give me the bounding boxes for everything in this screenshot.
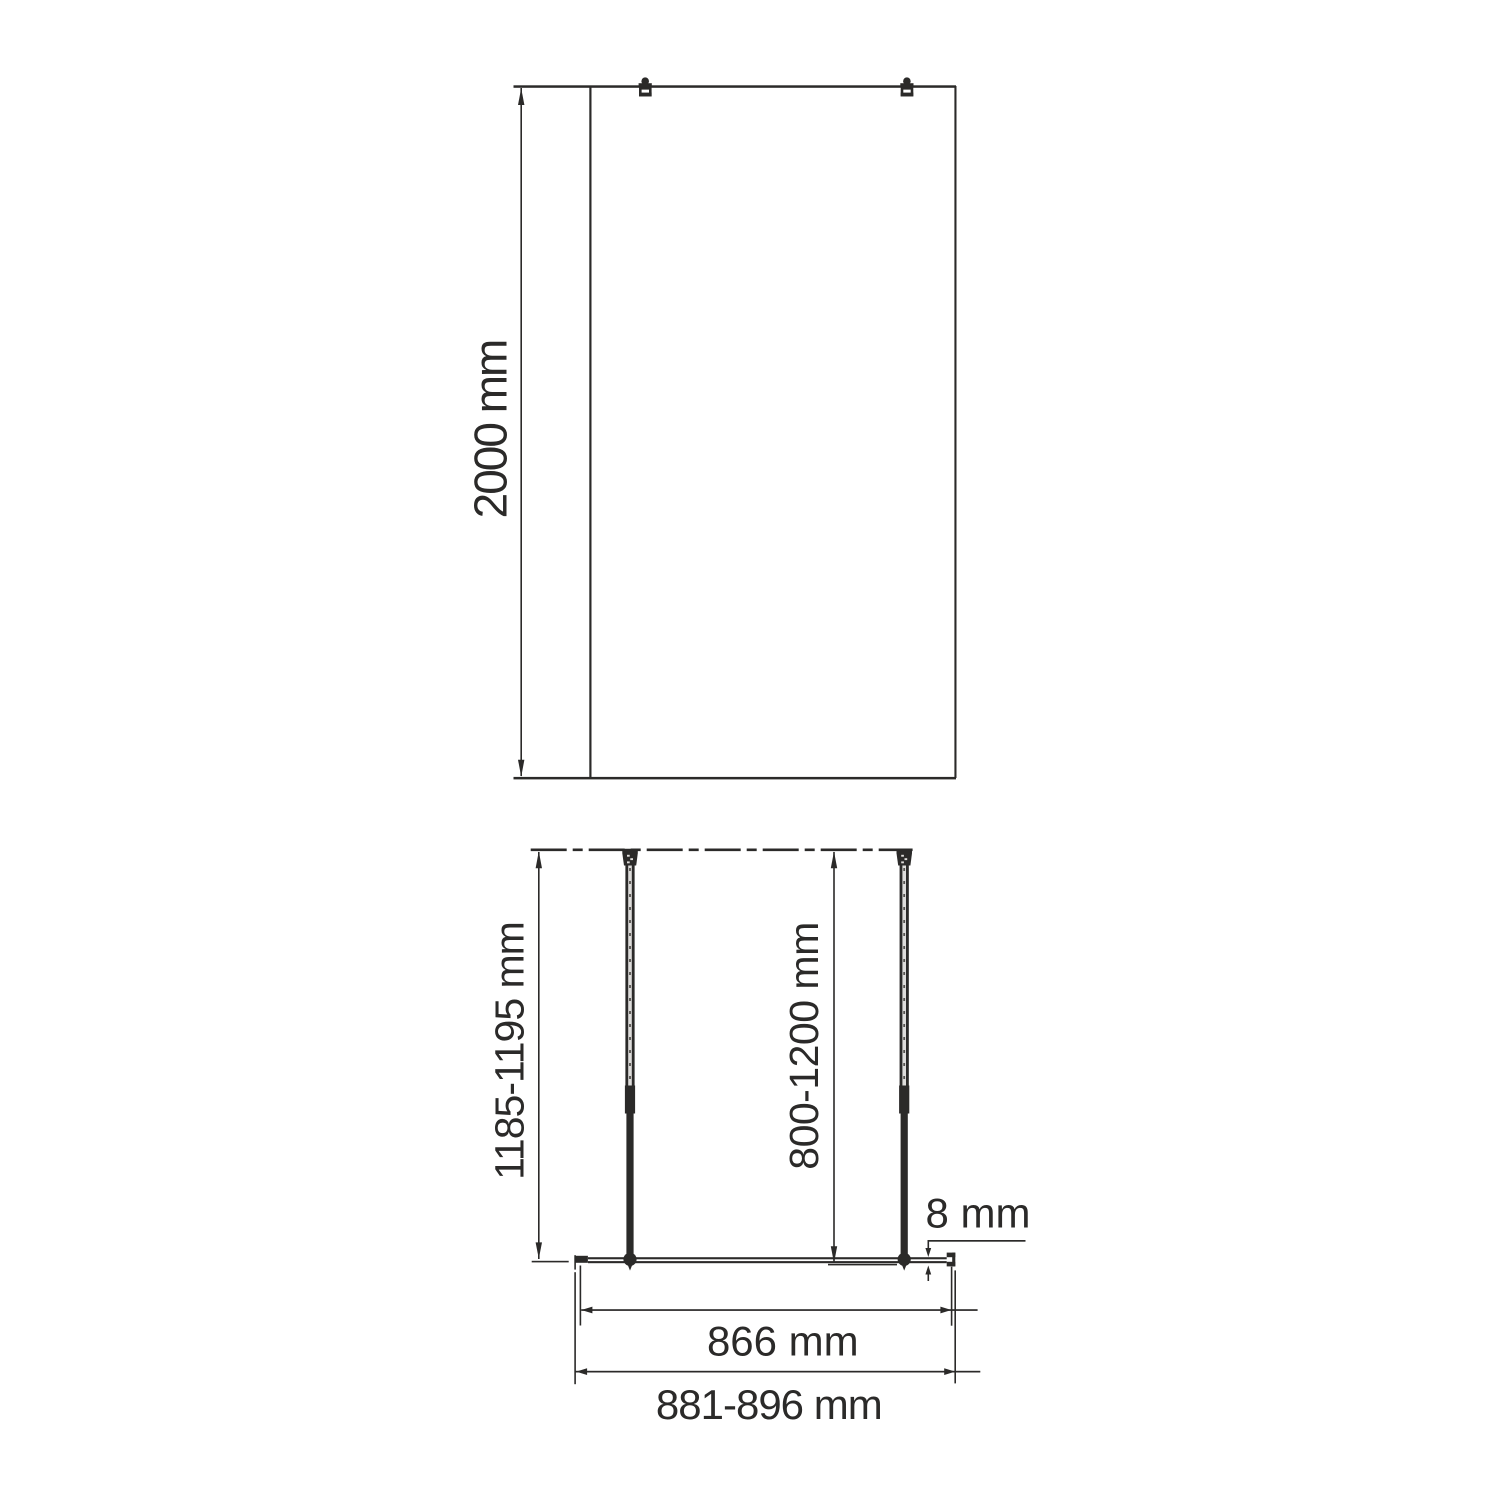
svg-text:800-1200 mm: 800-1200 mm	[781, 922, 827, 1169]
svg-text:881-896 mm: 881-896 mm	[656, 1381, 882, 1428]
svg-text:866 mm: 866 mm	[707, 1318, 859, 1365]
svg-text:1185-1195 mm: 1185-1195 mm	[487, 922, 533, 1180]
svg-text:2000 mm: 2000 mm	[465, 341, 517, 519]
svg-text:8 mm: 8 mm	[926, 1190, 1031, 1237]
